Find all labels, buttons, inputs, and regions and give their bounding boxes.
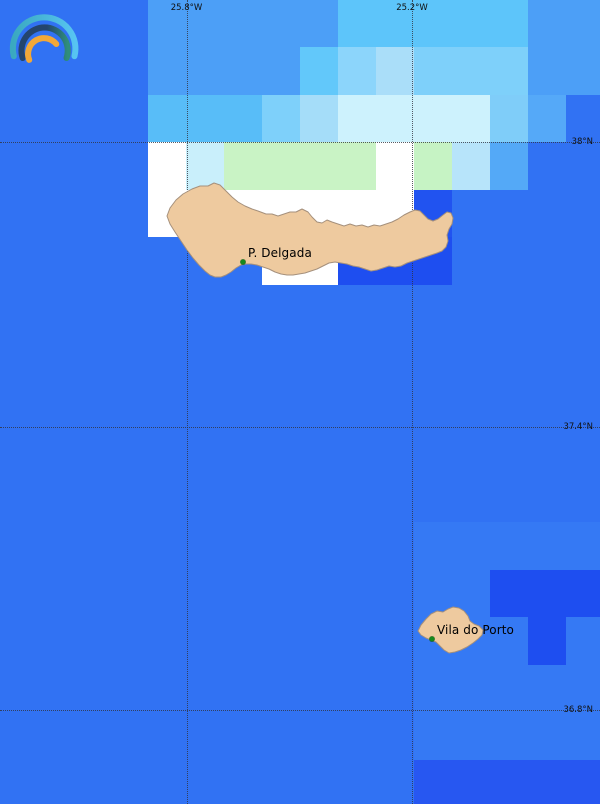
city-marker-vila-do-porto[interactable] xyxy=(430,637,435,642)
rainbow-logo-icon xyxy=(4,6,88,68)
logo-inner-arc xyxy=(28,38,56,60)
cities-layer: P. DelgadaVila do Porto xyxy=(0,0,600,804)
city-marker-p-delgada[interactable] xyxy=(241,260,246,265)
city-label[interactable]: P. Delgada xyxy=(248,246,312,260)
city-label[interactable]: Vila do Porto xyxy=(437,623,514,637)
weather-app-logo xyxy=(4,6,88,68)
weather-map[interactable]: 25.8°W25.2°W38°N37.4°N36.8°N P. DelgadaV… xyxy=(0,0,600,804)
